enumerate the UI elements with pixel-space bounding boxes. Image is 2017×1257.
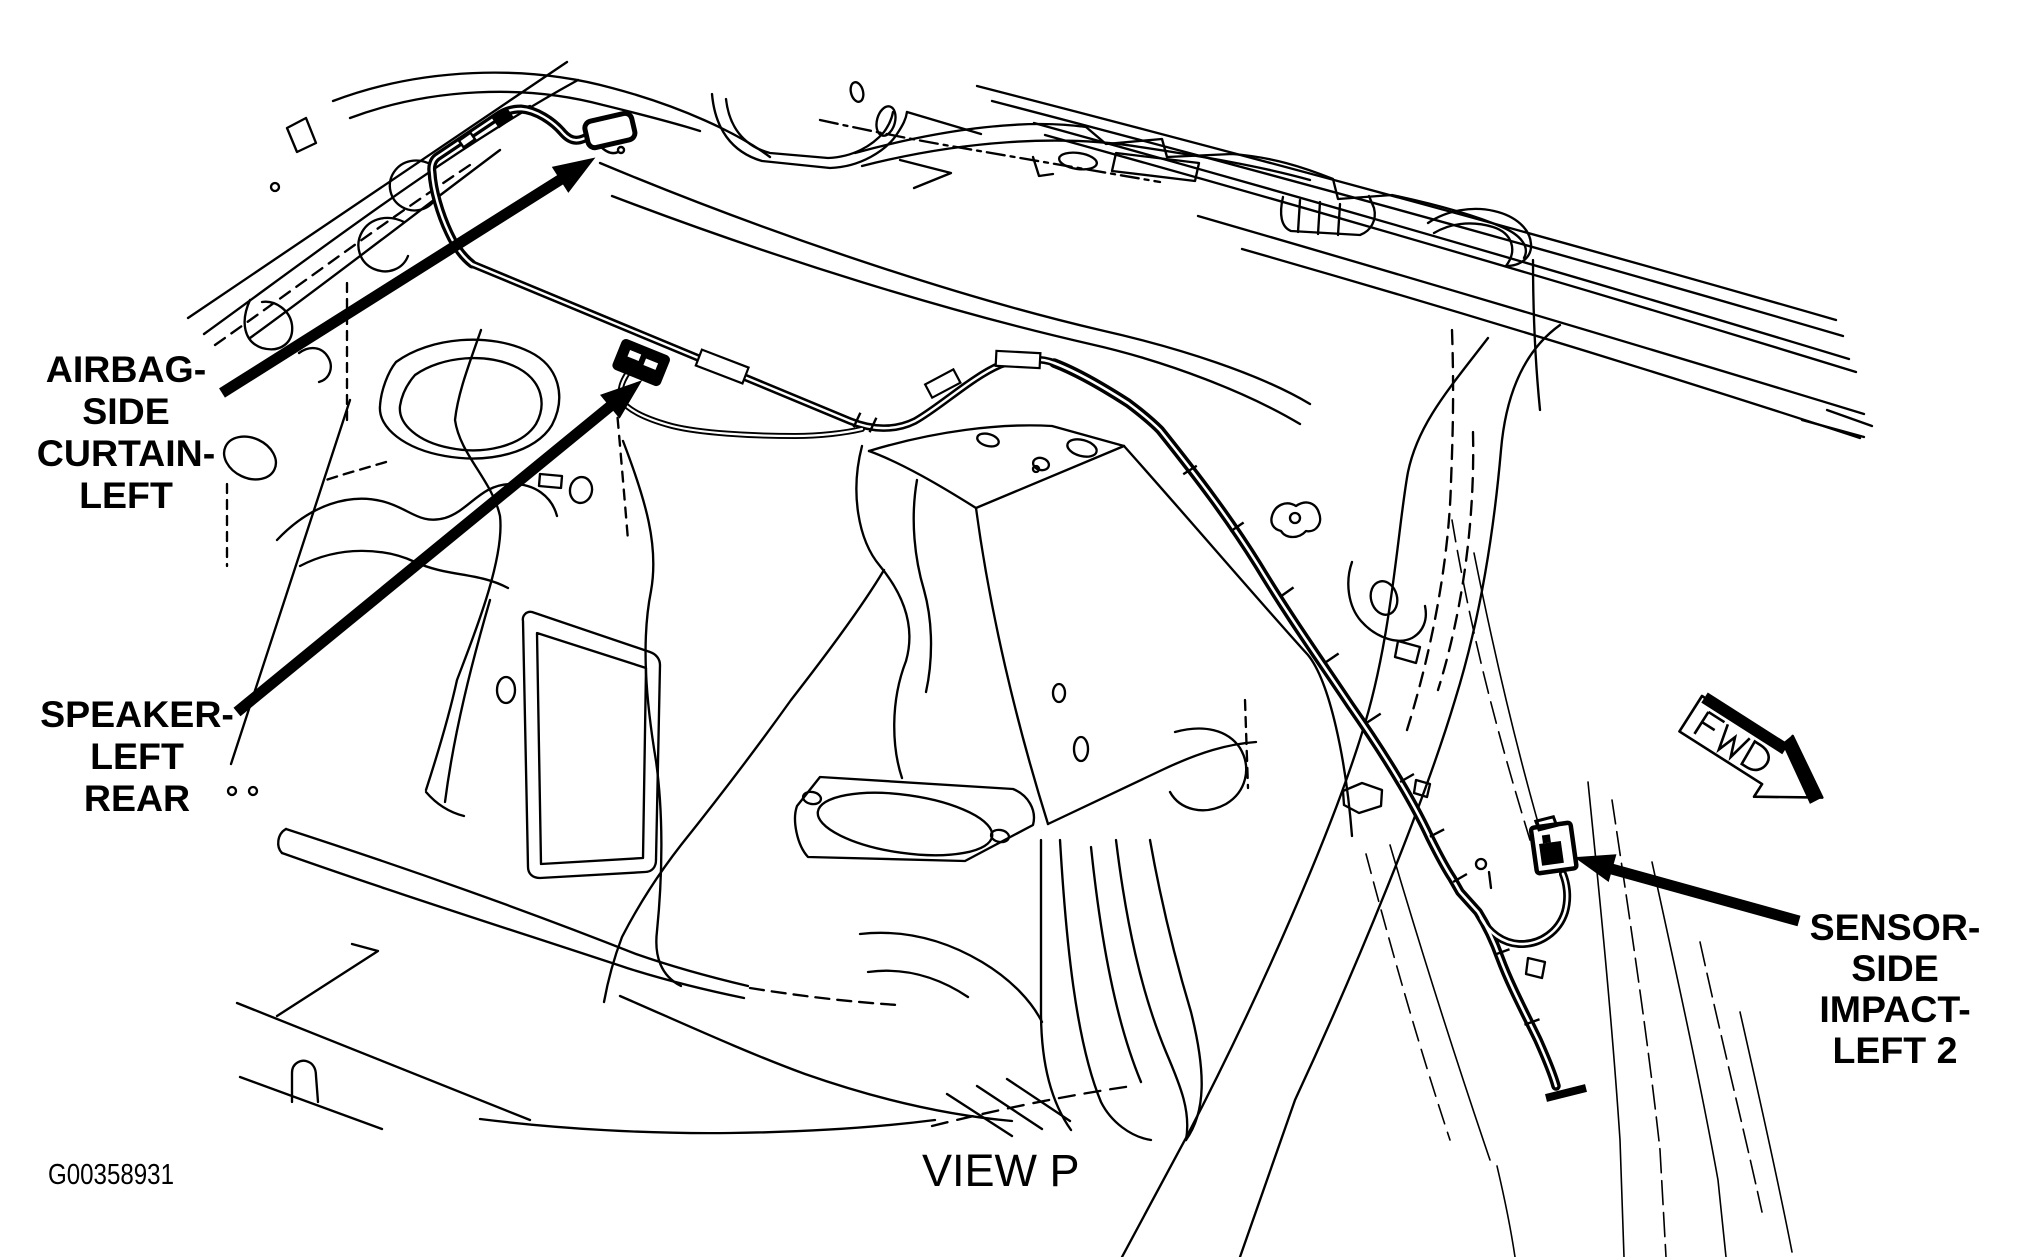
svg-text:SENSOR-: SENSOR- bbox=[1810, 906, 1981, 948]
svg-text:VIEW P: VIEW P bbox=[922, 1145, 1080, 1196]
svg-text:SPEAKER-: SPEAKER- bbox=[40, 693, 234, 735]
svg-text:SIDE: SIDE bbox=[1851, 947, 1939, 989]
svg-text:G00358931: G00358931 bbox=[48, 1159, 174, 1191]
svg-text:CURTAIN-: CURTAIN- bbox=[37, 432, 215, 474]
svg-text:IMPACT-: IMPACT- bbox=[1819, 988, 1970, 1030]
svg-text:SIDE: SIDE bbox=[82, 390, 170, 432]
svg-text:REAR: REAR bbox=[84, 777, 190, 819]
svg-text:LEFT: LEFT bbox=[90, 735, 184, 777]
svg-text:LEFT 2: LEFT 2 bbox=[1832, 1029, 1957, 1071]
svg-text:LEFT: LEFT bbox=[79, 474, 173, 516]
svg-text:AIRBAG-: AIRBAG- bbox=[46, 348, 206, 390]
